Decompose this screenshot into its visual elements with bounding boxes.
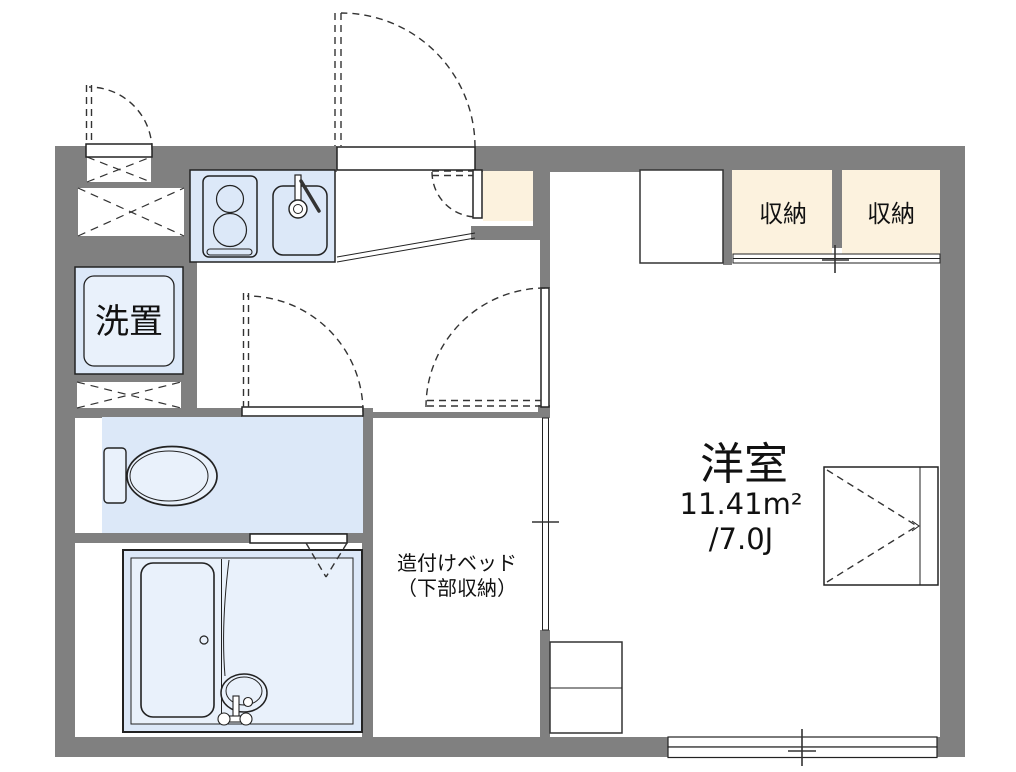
- faucet-base: [289, 200, 307, 218]
- wall-fridge-stub: [723, 170, 732, 265]
- closet-sliding-door-upper: [733, 254, 940, 259]
- laundry-label: 洗置: [95, 302, 163, 342]
- wall-hall-stub-top: [540, 240, 550, 288]
- entrance-inner-door: [473, 170, 482, 218]
- washbasin-foot-left: [218, 713, 230, 725]
- bed-label-line1: 造付けベッド: [397, 551, 517, 575]
- laundry-space: 洗置: [75, 267, 183, 374]
- western-room-area-jo: /7.0J: [709, 522, 773, 556]
- wall-toilet-top-right: [363, 412, 542, 418]
- refrigerator-space: [640, 170, 723, 263]
- wall-entrance-right: [533, 146, 550, 240]
- casement-window-box: [824, 467, 938, 585]
- built-in-bed-space: 造付けベッド （下部収納）: [397, 551, 517, 600]
- bed-label-line2: （下部収納）: [397, 576, 517, 600]
- wall-toilet-top-left: [75, 408, 242, 418]
- toilet-door: [242, 407, 363, 416]
- wall-right: [940, 146, 965, 757]
- wall-partition-lower: [540, 630, 550, 737]
- closet-right-label: 収納: [867, 200, 915, 228]
- wall-closet-divider: [832, 168, 842, 248]
- wall-top-mid: [197, 146, 337, 172]
- western-room-label: 洋室: [700, 439, 788, 490]
- shoe-cabinet: [483, 171, 533, 221]
- floor-plan: 洗置: [0, 0, 1016, 772]
- floor-plan-drawing: 洗置: [0, 0, 1016, 772]
- washbasin-faucet: [244, 698, 253, 707]
- bathtub: [141, 563, 214, 717]
- sliding-partition-panel: [543, 418, 549, 630]
- wall-entrance-bottom: [471, 226, 542, 240]
- stove-burner-top: [217, 186, 244, 213]
- room-door-leaf: [541, 288, 549, 407]
- service-door-leaf: [86, 144, 152, 157]
- wall-toilet-right: [362, 408, 373, 737]
- stove-burner-bottom: [214, 214, 247, 247]
- toilet-bowl: [127, 447, 217, 506]
- closet-left-label: 収納: [759, 200, 807, 228]
- bathroom: [123, 534, 362, 732]
- entrance-door: [337, 147, 475, 170]
- casement-window: [824, 467, 938, 585]
- wall-left-lower: [55, 418, 75, 737]
- toilet-tank: [104, 448, 126, 503]
- bathroom-door: [250, 534, 347, 543]
- kitchen: [190, 170, 335, 262]
- washbasin-foot-right: [240, 713, 252, 725]
- stove-grill: [207, 249, 252, 255]
- western-room-area-m2: 11.41m²: [680, 487, 803, 521]
- washbasin: [221, 674, 267, 712]
